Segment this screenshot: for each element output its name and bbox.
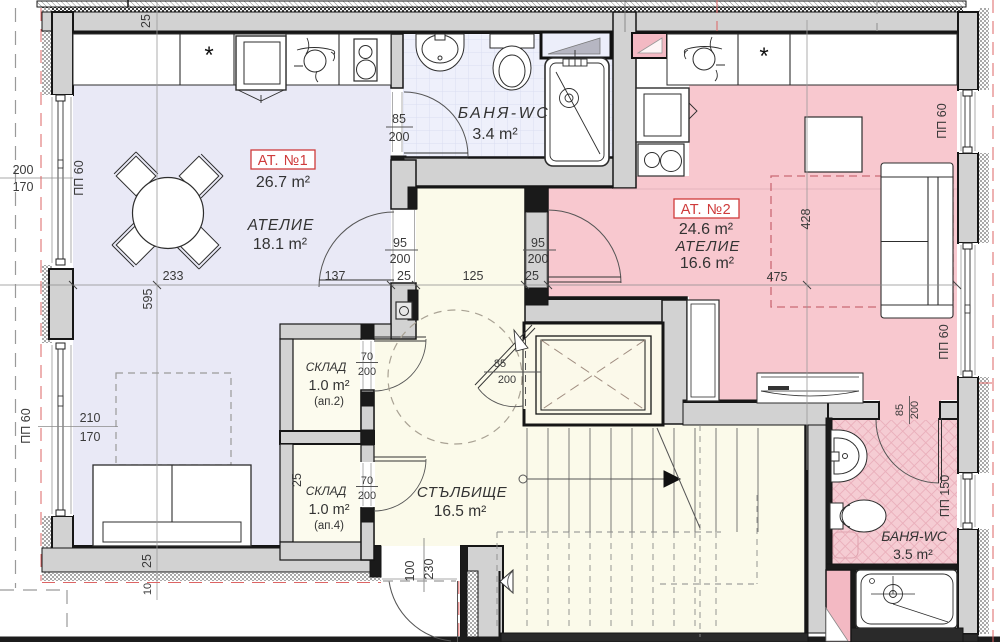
svg-text:16.6 m²: 16.6 m² xyxy=(680,255,735,272)
svg-text:25: 25 xyxy=(397,269,411,283)
svg-text:АТЕЛИЕ: АТЕЛИЕ xyxy=(247,217,315,234)
svg-text:70: 70 xyxy=(361,351,373,363)
svg-text:АТ. №2: АТ. №2 xyxy=(681,202,731,218)
svg-text:125: 125 xyxy=(463,269,484,283)
svg-text:24.6 m²: 24.6 m² xyxy=(679,221,734,238)
svg-text:210: 210 xyxy=(80,411,101,425)
svg-text:БАНЯ-WC: БАНЯ-WC xyxy=(458,105,551,122)
svg-text:200: 200 xyxy=(13,163,34,177)
svg-text:95: 95 xyxy=(531,236,545,250)
svg-text:95: 95 xyxy=(393,236,407,250)
svg-text:ПП 150: ПП 150 xyxy=(938,475,952,517)
svg-text:26.7 m²: 26.7 m² xyxy=(256,174,311,191)
svg-text:25: 25 xyxy=(525,269,539,283)
svg-text:200: 200 xyxy=(528,252,549,266)
svg-text:200: 200 xyxy=(389,130,410,144)
svg-text:БАНЯ-WC: БАНЯ-WC xyxy=(881,528,948,544)
svg-text:ПП 60: ПП 60 xyxy=(935,103,949,138)
svg-text:СТЪЛБИЩЕ: СТЪЛБИЩЕ xyxy=(417,484,508,501)
svg-text:ПП 60: ПП 60 xyxy=(937,324,951,359)
svg-text:200: 200 xyxy=(390,252,411,266)
svg-text:70: 70 xyxy=(361,475,373,487)
svg-text:170: 170 xyxy=(80,430,101,444)
svg-text:137: 137 xyxy=(325,269,346,283)
svg-text:ПП 60: ПП 60 xyxy=(19,408,33,443)
svg-text:230: 230 xyxy=(422,559,436,580)
svg-text:25: 25 xyxy=(290,473,304,487)
svg-text:1.0 m²: 1.0 m² xyxy=(308,502,349,518)
svg-text:*: * xyxy=(204,42,213,69)
svg-text:85: 85 xyxy=(494,358,506,370)
svg-text:200: 200 xyxy=(498,374,516,386)
svg-text:СКЛАД: СКЛАД xyxy=(306,484,347,498)
svg-text:200: 200 xyxy=(358,366,376,378)
svg-text:18.1 m²: 18.1 m² xyxy=(253,236,308,253)
svg-text:200: 200 xyxy=(909,401,921,419)
svg-text:3.4 m²: 3.4 m² xyxy=(472,126,518,143)
svg-text:428: 428 xyxy=(799,209,813,230)
svg-text:(ап.2): (ап.2) xyxy=(314,396,344,408)
svg-text:10: 10 xyxy=(142,583,154,595)
svg-text:200: 200 xyxy=(358,490,376,502)
svg-text:233: 233 xyxy=(163,269,184,283)
svg-text:АТЕЛИЕ: АТЕЛИЕ xyxy=(675,238,741,255)
svg-text:1.0 m²: 1.0 m² xyxy=(308,378,349,394)
svg-text:АТ. №1: АТ. №1 xyxy=(258,153,308,169)
svg-text:(ап.4): (ап.4) xyxy=(314,520,344,532)
svg-text:595: 595 xyxy=(141,289,155,310)
svg-text:25: 25 xyxy=(139,14,153,28)
svg-text:16.5 m²: 16.5 m² xyxy=(434,503,487,520)
svg-text:85: 85 xyxy=(894,404,906,416)
svg-text:ПП 60: ПП 60 xyxy=(72,160,86,195)
svg-text:85: 85 xyxy=(392,112,406,126)
svg-text:475: 475 xyxy=(767,270,788,284)
svg-text:25: 25 xyxy=(140,554,154,568)
svg-text:170: 170 xyxy=(13,180,34,194)
svg-text:*: * xyxy=(759,43,768,70)
svg-text:3.5 m²: 3.5 m² xyxy=(893,546,933,562)
svg-text:СКЛАД: СКЛАД xyxy=(306,360,347,374)
svg-text:100: 100 xyxy=(403,561,417,582)
